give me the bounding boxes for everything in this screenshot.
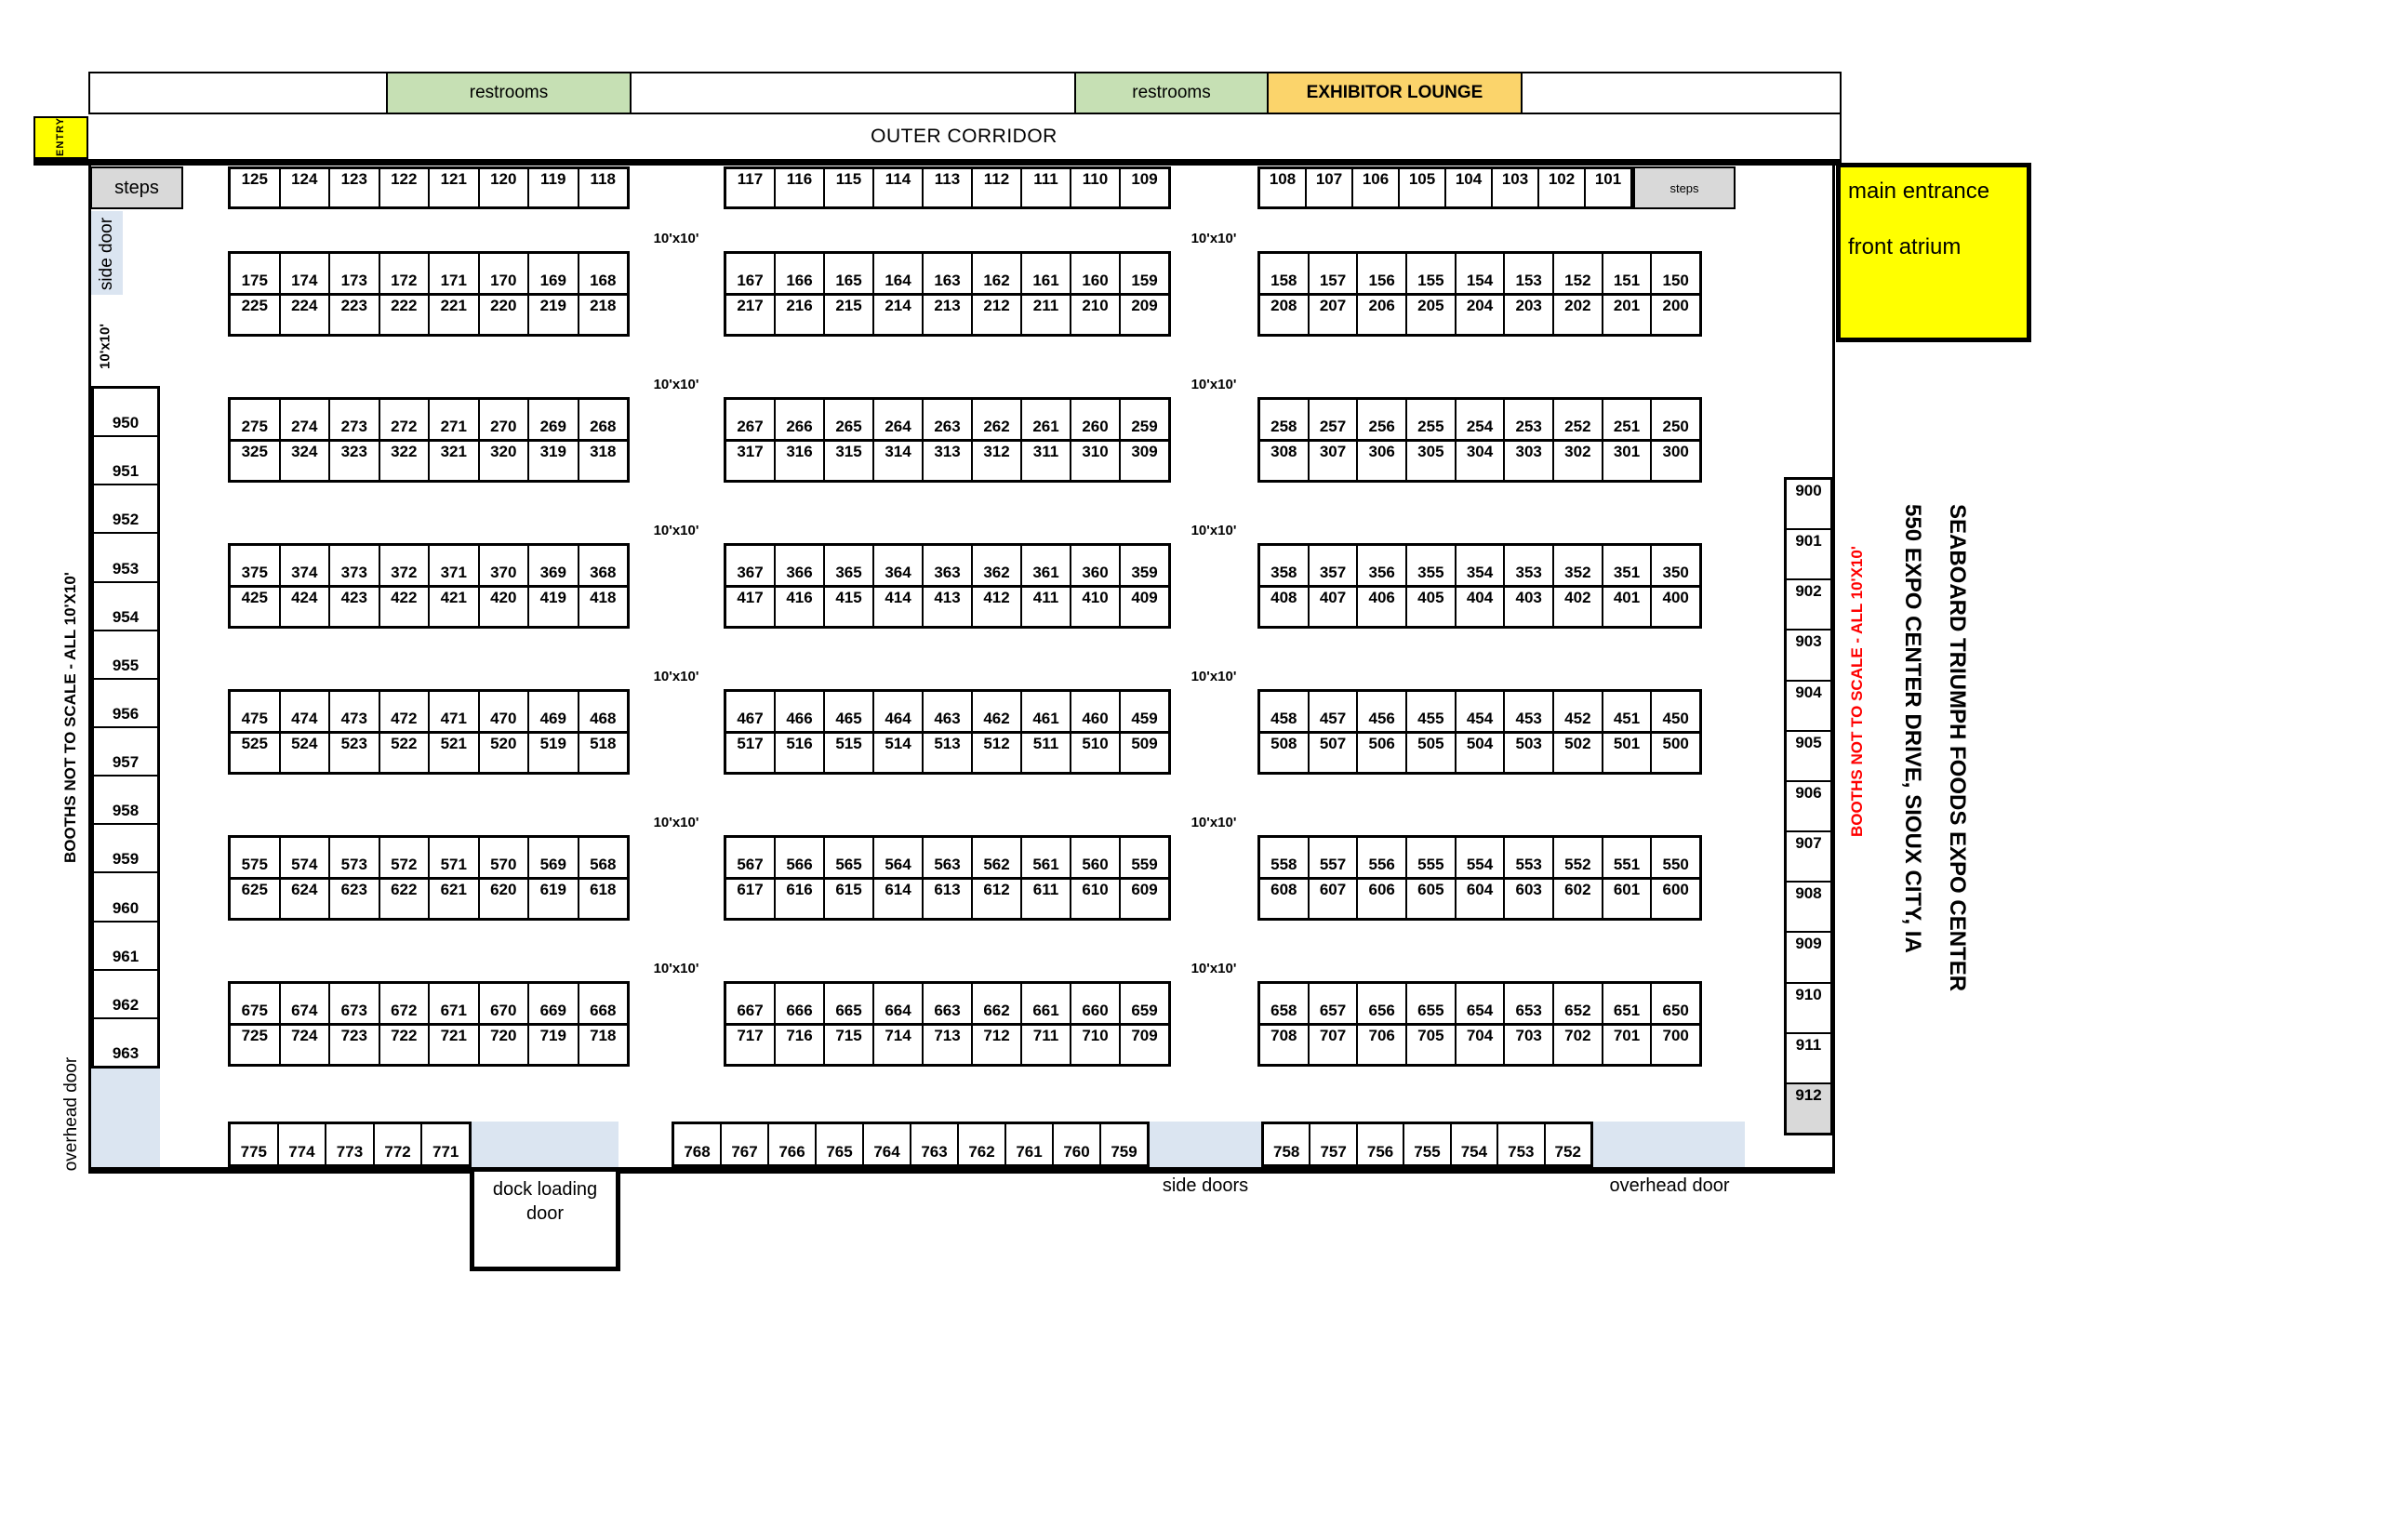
booth-cell: 621	[428, 880, 478, 919]
booth-number: 213	[934, 298, 960, 315]
restrooms-left: restrooms	[386, 73, 630, 113]
booth-cell: 172	[379, 254, 429, 293]
booth-number: 571	[441, 856, 467, 874]
booth-number: 901	[1795, 532, 1821, 551]
booth-number: 624	[291, 882, 317, 899]
booth-number: 573	[341, 856, 367, 874]
booth-cell: 463	[922, 692, 971, 731]
booth-number: 321	[441, 444, 467, 461]
booth-number: 303	[1516, 444, 1542, 461]
booth-number: 358	[1270, 564, 1297, 582]
booth-cell: 167	[726, 254, 774, 293]
booth-cell: 464	[872, 692, 922, 731]
booth-cell: 264	[872, 400, 922, 439]
booth-number: 365	[835, 564, 861, 582]
booth-cell: 123	[328, 169, 379, 206]
booth-number: 911	[1796, 1036, 1821, 1055]
booth-number: 203	[1516, 298, 1542, 315]
booth-cell: 606	[1356, 880, 1405, 919]
booth-number: 902	[1795, 582, 1821, 601]
booth-number: 104	[1456, 171, 1482, 189]
booth-row: 375374373372371370369368	[231, 546, 627, 588]
booth-number: 720	[490, 1028, 516, 1045]
booth-cell: 265	[823, 400, 872, 439]
booth-number: 204	[1467, 298, 1493, 315]
booth-cell: 450	[1650, 692, 1699, 731]
booth-number: 165	[835, 272, 861, 290]
booth-cell: 451	[1602, 692, 1651, 731]
booth-number: 506	[1368, 736, 1394, 753]
booth-cell: 666	[774, 984, 823, 1023]
booth-cell: 322	[379, 442, 429, 481]
booth-number: 156	[1368, 272, 1394, 290]
booth-cell: 214	[872, 296, 922, 335]
booth-number: 453	[1516, 710, 1542, 728]
booth-cell: 271	[428, 400, 478, 439]
booth-cell: 310	[1070, 442, 1119, 481]
booth-number: 514	[885, 736, 911, 753]
booth-cell: 574	[279, 838, 329, 877]
booth-cell: 759	[1099, 1124, 1147, 1164]
booth-row: 317316315314313312311310309	[726, 442, 1168, 481]
booth-cell: 119	[527, 169, 578, 206]
booth-number: 114	[885, 171, 911, 189]
wall-top	[33, 159, 1842, 166]
booth-number: 107	[1316, 171, 1342, 189]
booth-number: 963	[113, 1044, 139, 1063]
booth-cell: 520	[478, 734, 528, 773]
booth-size-label: 10'x10'	[634, 377, 718, 392]
booth-cell: 475	[231, 692, 279, 731]
side-doors-label: side doors	[1131, 1175, 1280, 1197]
booth-number: 556	[1368, 856, 1394, 874]
booth-pair-group: 4754744734724714704694685255245235225215…	[228, 689, 630, 775]
booth-number: 465	[835, 710, 861, 728]
booth-number: 662	[983, 1002, 1009, 1020]
booth-row: 425424423422421420419418	[231, 588, 627, 627]
booth-number: 719	[540, 1028, 566, 1045]
booth-number: 154	[1467, 272, 1493, 290]
booth-cell: 370	[478, 546, 528, 585]
booth-number: 961	[113, 948, 139, 966]
booth-number: 470	[490, 710, 516, 728]
booth-number: 753	[1508, 1144, 1534, 1162]
booth-number: 110	[1083, 171, 1108, 189]
booth-number: 463	[934, 710, 960, 728]
booth-pair-group: 5675665655645635625615605596176166156146…	[724, 835, 1171, 921]
booth-number: 773	[337, 1144, 363, 1162]
booth-cell: 107	[1305, 169, 1351, 206]
booth-number: 664	[885, 1002, 911, 1020]
booth-number: 118	[591, 171, 616, 189]
booth-number: 723	[341, 1028, 367, 1045]
booth-cell: 518	[578, 734, 628, 773]
booth-number: 209	[1131, 298, 1157, 315]
booth-number: 761	[1016, 1144, 1042, 1162]
booth-pair-group: 4584574564554544534524514505085075065055…	[1257, 689, 1702, 775]
booth-row: 625624623622621620619618	[231, 880, 627, 919]
booth-cell: 421	[428, 588, 478, 627]
booth-number: 322	[391, 444, 417, 461]
overhead-door-left-label: overhead door	[61, 1054, 82, 1175]
booth-number: 557	[1320, 856, 1346, 874]
booth-cell: 760	[1052, 1124, 1099, 1164]
booth-number: 454	[1467, 710, 1493, 728]
booth-cell: 566	[774, 838, 823, 877]
booth-cell: 163	[922, 254, 971, 293]
booth-number: 562	[983, 856, 1009, 874]
booth-number: 565	[835, 856, 861, 874]
booth-pair-group: 2672662652642632622612602593173163153143…	[724, 397, 1171, 483]
booth-number: 611	[1033, 882, 1058, 899]
booth-number: 616	[786, 882, 812, 899]
booth-cell: 373	[328, 546, 379, 585]
booth-number: 774	[288, 1144, 314, 1162]
booth-number: 202	[1564, 298, 1590, 315]
booth-cell: 901	[1787, 528, 1830, 578]
booth-cell: 401	[1602, 588, 1651, 627]
booth-number: 763	[921, 1144, 947, 1162]
booth-cell: 700	[1650, 1026, 1699, 1065]
booth-cell: 175	[231, 254, 279, 293]
booth-cell: 250	[1650, 400, 1699, 439]
booth-cell: 224	[279, 296, 329, 335]
booth-number: 225	[242, 298, 268, 315]
booth-cell: 474	[279, 692, 329, 731]
booth-cell: 605	[1405, 880, 1455, 919]
booth-number: 425	[242, 590, 268, 607]
booth-number: 309	[1131, 444, 1157, 461]
booth-cell: 654	[1455, 984, 1504, 1023]
booth-number: 401	[1614, 590, 1640, 607]
booth-size-label: 10'x10'	[1172, 961, 1256, 976]
booth-number: 323	[341, 444, 367, 461]
booth-row: 508507506505504503502501500	[1260, 734, 1699, 773]
booth-row: 325324323322321320319318	[231, 442, 627, 481]
booth-cell: 173	[328, 254, 379, 293]
booth-number: 651	[1614, 1002, 1640, 1020]
booth-pair-group: 2582572562552542532522512503083073063053…	[1257, 397, 1702, 483]
booth-number: 352	[1564, 564, 1590, 582]
booth-number: 356	[1368, 564, 1394, 582]
booth-cell: 705	[1405, 1026, 1455, 1065]
booth-cell: 961	[94, 921, 157, 969]
booth-cell: 658	[1260, 984, 1308, 1023]
booth-number: 511	[1033, 736, 1058, 753]
booth-cell: 160	[1070, 254, 1119, 293]
booth-cell: 256	[1356, 400, 1405, 439]
booth-cell: 653	[1503, 984, 1552, 1023]
booth-number: 764	[873, 1144, 899, 1162]
booth-number: 703	[1516, 1028, 1542, 1045]
booth-cell: 208	[1260, 296, 1308, 335]
booth-number: 316	[786, 444, 812, 461]
booth-number: 362	[983, 564, 1009, 582]
booth-cell: 774	[277, 1124, 326, 1164]
booth-number: 267	[737, 418, 763, 436]
booth-number: 151	[1614, 272, 1640, 290]
booth-cell: 356	[1356, 546, 1405, 585]
booth-cell: 153	[1503, 254, 1552, 293]
booth-cell: 207	[1308, 296, 1357, 335]
booth-number: 353	[1516, 564, 1542, 582]
booth-cell: 754	[1450, 1124, 1496, 1164]
booth-cell: 959	[94, 823, 157, 871]
booth-cell: 556	[1356, 838, 1405, 877]
booth-cell: 211	[1020, 296, 1070, 335]
booth-cell: 106	[1351, 169, 1398, 206]
booth-number: 461	[1032, 710, 1058, 728]
booth-cell: 164	[872, 254, 922, 293]
booth-number: 516	[786, 736, 812, 753]
booth-row: 617616615614613612611610609	[726, 880, 1168, 919]
booth-cell: 652	[1552, 984, 1602, 1023]
booth-cell: 516	[774, 734, 823, 773]
booth-number: 708	[1270, 1028, 1297, 1045]
booth-number: 253	[1516, 418, 1542, 436]
outer-corridor: OUTER CORRIDOR	[88, 114, 1842, 159]
booth-number: 109	[1131, 171, 1157, 189]
booth-row: 267266265264263262261260259	[726, 400, 1168, 442]
booth-number: 414	[885, 590, 911, 607]
booth-number: 311	[1033, 444, 1058, 461]
booth-cell: 709	[1119, 1026, 1168, 1065]
booth-number: 652	[1564, 1002, 1590, 1020]
booth-number: 510	[1082, 736, 1108, 753]
side-door-label: side door	[97, 214, 117, 294]
booth-cell: 912	[1787, 1082, 1830, 1133]
booth-cell: 257	[1308, 400, 1357, 439]
booth-number: 359	[1131, 564, 1157, 582]
booth-cell: 575	[231, 838, 279, 877]
booth-number: 462	[983, 710, 1009, 728]
booth-cell: 352	[1552, 546, 1602, 585]
booth-number: 609	[1131, 882, 1157, 899]
booth-number: 106	[1363, 171, 1389, 189]
booth-cell: 260	[1070, 400, 1119, 439]
booth-cell: 112	[971, 169, 1020, 206]
booth-cell: 618	[578, 880, 628, 919]
booth-number: 614	[885, 882, 911, 899]
booth-number: 460	[1082, 710, 1108, 728]
booth-cell: 354	[1455, 546, 1504, 585]
booth-number: 119	[540, 171, 565, 189]
booth-cell: 674	[279, 984, 329, 1023]
booth-number: 659	[1131, 1002, 1157, 1020]
booth-number: 513	[934, 736, 960, 753]
booth-pair-group: 3753743733723713703693684254244234224214…	[228, 543, 630, 629]
booth-number: 210	[1082, 298, 1108, 315]
booth-cell: 706	[1356, 1026, 1405, 1065]
booth-row: 225224223222221220219218	[231, 296, 627, 335]
booth-cell: 767	[720, 1124, 767, 1164]
scale-note-right: BOOTHS NOT TO SCALE - ALL 10'X10'	[1848, 558, 1867, 837]
booth-cell: 165	[823, 254, 872, 293]
booth-cell: 600	[1650, 880, 1699, 919]
strip-blank-1	[90, 73, 386, 113]
booth-cell: 116	[774, 169, 823, 206]
booth-number: 954	[113, 608, 139, 627]
booth-cell: 469	[527, 692, 578, 731]
booth-number: 760	[1063, 1144, 1089, 1162]
booth-row: 367366365364363362361360359	[726, 546, 1168, 588]
booth-cell: 768	[674, 1124, 720, 1164]
booth-cell: 660	[1070, 984, 1119, 1023]
booth-row: 717716715714713712711710709	[726, 1026, 1168, 1065]
booth-number: 710	[1082, 1028, 1108, 1045]
booth-number: 525	[242, 736, 268, 753]
booth-cell: 712	[971, 1026, 1020, 1065]
booth-number: 117	[738, 171, 763, 189]
booth-cell: 668	[578, 984, 628, 1023]
booth-cell: 560	[1070, 838, 1119, 877]
booth-cell: 602	[1552, 880, 1602, 919]
booth-cell: 225	[231, 296, 279, 335]
booth-number: 700	[1663, 1028, 1689, 1045]
booth-cell: 205	[1405, 296, 1455, 335]
booth-number: 403	[1516, 590, 1542, 607]
booth-number: 354	[1467, 564, 1493, 582]
booth-cell: 154	[1455, 254, 1504, 293]
booth-cell: 261	[1020, 400, 1070, 439]
booth-cell: 168	[578, 254, 628, 293]
booth-number: 408	[1270, 590, 1297, 607]
booth-pair-group: 6756746736726716706696687257247237227217…	[228, 981, 630, 1067]
booth-cell: 505	[1405, 734, 1455, 773]
booth-cell: 166	[774, 254, 823, 293]
booth-cell: 956	[94, 678, 157, 726]
booth-column-group: 9509519529539549559569579589599609619629…	[91, 386, 160, 1069]
booth-cell: 200	[1650, 296, 1699, 335]
booth-number: 471	[441, 710, 467, 728]
booth-cell: 411	[1020, 588, 1070, 627]
booth-cell: 716	[774, 1026, 823, 1065]
booth-number: 519	[540, 736, 566, 753]
booth-number: 255	[1417, 418, 1443, 436]
booth-cell: 405	[1405, 588, 1455, 627]
booth-cell: 911	[1787, 1032, 1830, 1082]
booth-number: 212	[983, 298, 1009, 315]
booth-number: 272	[391, 418, 417, 436]
booth-cell: 218	[578, 296, 628, 335]
booth-number: 173	[341, 272, 367, 290]
booth-number: 503	[1516, 736, 1542, 753]
booth-number: 370	[490, 564, 516, 582]
booth-number: 374	[291, 564, 317, 582]
booth-cell: 519	[527, 734, 578, 773]
booth-cell: 512	[971, 734, 1020, 773]
booth-cell: 552	[1552, 838, 1602, 877]
booth-cell: 762	[957, 1124, 1004, 1164]
booth-number: 555	[1417, 856, 1443, 874]
booth-cell: 422	[379, 588, 429, 627]
booth-cell: 219	[527, 296, 578, 335]
booth-number: 421	[441, 590, 467, 607]
booth-number: 250	[1663, 418, 1689, 436]
booth-number: 718	[590, 1028, 616, 1045]
booth-cell: 955	[94, 630, 157, 678]
booth-number: 661	[1032, 1002, 1058, 1020]
booth-number: 451	[1614, 710, 1640, 728]
booth-number: 512	[983, 736, 1009, 753]
booth-number: 524	[291, 736, 317, 753]
booth-cell: 608	[1260, 880, 1308, 919]
booth-number: 419	[540, 590, 566, 607]
booth-cell: 625	[231, 880, 279, 919]
booth-number: 350	[1663, 564, 1689, 582]
booth-cell: 473	[328, 692, 379, 731]
entry-label: ENTRY	[55, 92, 66, 181]
booth-number: 219	[540, 298, 566, 315]
booth-number: 259	[1131, 418, 1157, 436]
booth-number: 410	[1082, 590, 1108, 607]
booth-cell: 318	[578, 442, 628, 481]
booth-number: 668	[590, 1002, 616, 1020]
booth-number: 458	[1270, 710, 1297, 728]
booth-cell: 362	[971, 546, 1020, 585]
booth-number: 908	[1795, 884, 1821, 903]
booth-cell: 410	[1070, 588, 1119, 627]
booth-cell: 617	[726, 880, 774, 919]
booth-cell: 554	[1455, 838, 1504, 877]
booth-cell: 567	[726, 838, 774, 877]
booth-number: 502	[1564, 736, 1590, 753]
booth-pair-group: 1671661651641631621611601592172162152142…	[724, 251, 1171, 337]
booth-cell: 510	[1070, 734, 1119, 773]
booth-number: 907	[1795, 834, 1821, 853]
strip-blank-3	[1521, 73, 1840, 113]
booth-number: 607	[1320, 882, 1346, 899]
booth-number: 706	[1368, 1028, 1394, 1045]
booth-cell: 656	[1356, 984, 1405, 1023]
booth-cell: 202	[1552, 296, 1602, 335]
booth-number: 162	[983, 272, 1009, 290]
booth-cell: 708	[1260, 1026, 1308, 1065]
booth-number: 655	[1417, 1002, 1443, 1020]
booth-number: 125	[242, 171, 268, 189]
booth-number: 758	[1273, 1144, 1299, 1162]
restrooms-right: restrooms	[1074, 73, 1267, 113]
booth-number: 721	[441, 1028, 467, 1045]
booth-number: 960	[113, 899, 139, 918]
booth-cell: 355	[1405, 546, 1455, 585]
booth-cell: 954	[94, 581, 157, 630]
booth-cell: 158	[1260, 254, 1308, 293]
booth-cell: 124	[279, 169, 329, 206]
booth-number: 951	[113, 462, 139, 481]
booth-number: 620	[490, 882, 516, 899]
booth-number: 314	[885, 444, 911, 461]
booth-cell: 456	[1356, 692, 1405, 731]
booth-cell: 367	[726, 546, 774, 585]
booth-cell: 714	[872, 1026, 922, 1065]
booth-cell: 216	[774, 296, 823, 335]
booth-row: 525524523522521520519518	[231, 734, 627, 773]
booth-number: 172	[391, 272, 417, 290]
booth-cell: 571	[428, 838, 478, 877]
booth-cell: 953	[94, 532, 157, 580]
booth-cell: 113	[922, 169, 971, 206]
booth-number: 450	[1663, 710, 1689, 728]
booth-number: 551	[1614, 856, 1640, 874]
booth-number: 318	[590, 444, 616, 461]
booth-cell: 307	[1308, 442, 1357, 481]
booth-row: 167166165164163162161160159	[726, 254, 1168, 296]
booth-cell: 317	[726, 442, 774, 481]
booth-cell: 614	[872, 880, 922, 919]
booth-cell: 951	[94, 435, 157, 484]
booth-cell: 702	[1552, 1026, 1602, 1065]
